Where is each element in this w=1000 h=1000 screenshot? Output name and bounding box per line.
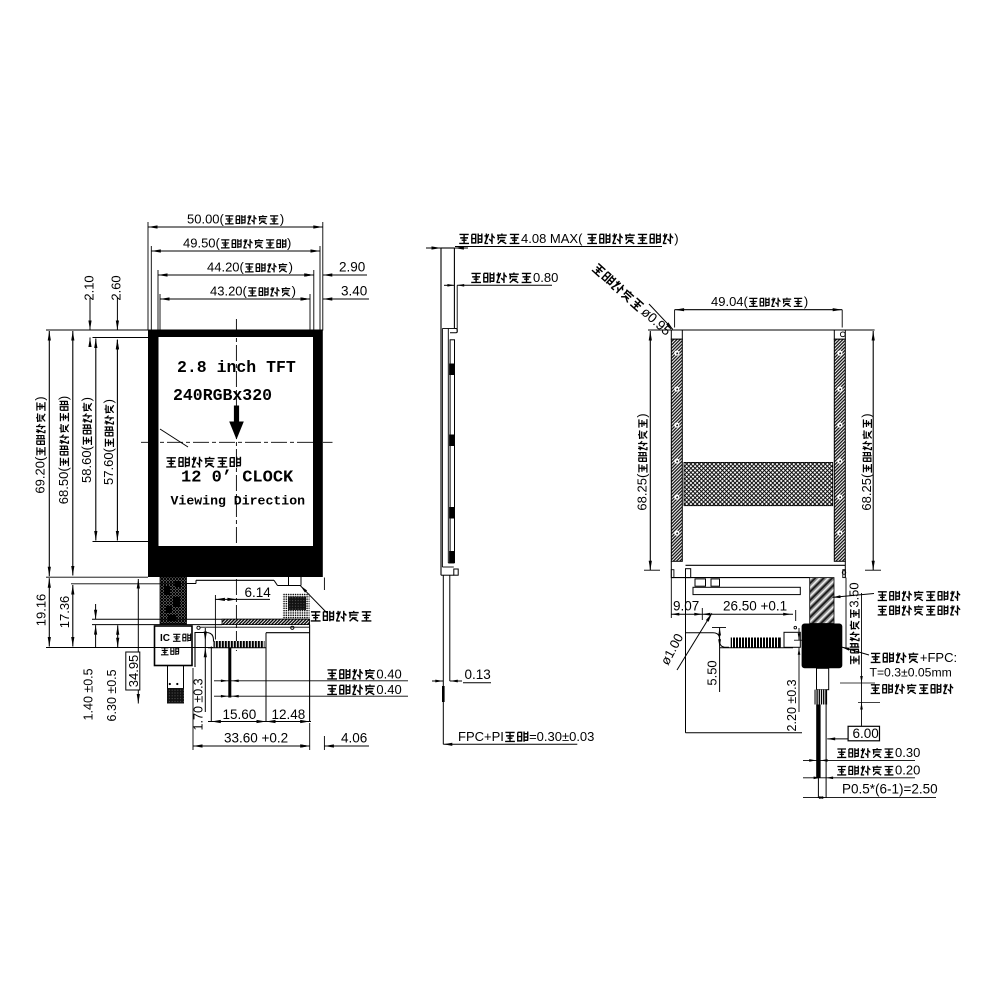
svg-text:50.00(: 50.00( <box>187 212 225 227</box>
svg-text:=0.30: =0.30 <box>529 729 562 744</box>
svg-text:): ) <box>33 396 48 400</box>
svg-text:6.00: 6.00 <box>853 726 879 741</box>
svg-text:0.40: 0.40 <box>376 682 401 697</box>
svg-text:1.40: 1.40 <box>82 696 96 720</box>
svg-text:±0.03: ±0.03 <box>562 729 594 744</box>
svg-text:+FPC:: +FPC: <box>920 650 957 665</box>
svg-text:): ) <box>56 396 71 400</box>
svg-text:±0.5: ±0.5 <box>82 668 96 692</box>
svg-text:68.50(: 68.50( <box>56 467 71 505</box>
svg-text:57.60(: 57.60( <box>101 447 116 485</box>
svg-text:): ) <box>287 236 291 251</box>
svg-text:68.25(: 68.25( <box>859 473 874 511</box>
svg-text:±0.3: ±0.3 <box>785 679 799 703</box>
svg-text:68.25(: 68.25( <box>635 473 650 511</box>
svg-text:6.14: 6.14 <box>245 585 272 600</box>
svg-text:43.20(: 43.20( <box>210 284 248 299</box>
svg-text:58.60(: 58.60( <box>79 445 94 483</box>
svg-text:): ) <box>635 413 650 417</box>
svg-text:T=0.3: T=0.3 <box>870 666 902 680</box>
svg-text:33.60 +0.2: 33.60 +0.2 <box>224 731 288 746</box>
svg-text:19.16: 19.16 <box>34 594 49 627</box>
svg-text:34.95: 34.95 <box>126 655 141 688</box>
svg-text:15.60: 15.60 <box>223 707 257 722</box>
svg-text:IC: IC <box>160 633 170 644</box>
svg-text:2.60: 2.60 <box>109 275 124 300</box>
svg-text:P0.5*(6-1)=2.50: P0.5*(6-1)=2.50 <box>842 782 938 797</box>
svg-text:): ) <box>101 399 116 403</box>
svg-text:): ) <box>859 413 874 417</box>
svg-text:2.8 inch TFT: 2.8 inch TFT <box>177 358 296 377</box>
svg-text:9.07: 9.07 <box>673 599 699 614</box>
svg-text:0.20: 0.20 <box>895 763 920 778</box>
svg-text:12.48: 12.48 <box>272 707 306 722</box>
svg-text:6.30: 6.30 <box>105 697 119 721</box>
svg-text:49.50(: 49.50( <box>183 236 221 251</box>
svg-text:12 0’ CLOCK: 12 0’ CLOCK <box>181 469 294 488</box>
svg-text:69.20(: 69.20( <box>33 456 48 494</box>
svg-text:49.04(: 49.04( <box>711 294 749 309</box>
svg-text:): ) <box>292 284 296 299</box>
svg-text:): ) <box>804 294 808 309</box>
svg-text:2.90: 2.90 <box>339 260 365 275</box>
svg-text:Viewing Direction: Viewing Direction <box>171 494 306 509</box>
svg-text:0.40: 0.40 <box>376 667 401 682</box>
svg-text:FPC+PI: FPC+PI <box>458 729 504 744</box>
svg-text:): ) <box>79 397 94 401</box>
svg-text:±0.05mm: ±0.05mm <box>901 666 952 680</box>
svg-text:17.36: 17.36 <box>57 596 72 629</box>
svg-text:5.50: 5.50 <box>705 660 720 685</box>
svg-text:±0.3: ±0.3 <box>192 678 206 702</box>
svg-text:44.20(: 44.20( <box>207 260 245 275</box>
svg-text:0.80: 0.80 <box>533 270 558 285</box>
svg-text:): ) <box>289 260 293 275</box>
svg-text:): ) <box>674 231 678 246</box>
svg-text:2.20: 2.20 <box>785 707 799 731</box>
svg-text:4.08 MAX(: 4.08 MAX( <box>521 231 583 246</box>
svg-text:0.30: 0.30 <box>895 745 920 760</box>
svg-text:1.70: 1.70 <box>192 706 206 730</box>
svg-text:3.40: 3.40 <box>341 284 367 299</box>
svg-text:26.50 +0.1: 26.50 +0.1 <box>723 599 787 614</box>
svg-text:0.13: 0.13 <box>465 667 491 682</box>
svg-text:4.06: 4.06 <box>341 731 367 746</box>
svg-text:2.10: 2.10 <box>82 275 97 300</box>
svg-text:±0.5: ±0.5 <box>105 669 119 693</box>
svg-text:240RGBx320: 240RGBx320 <box>173 386 272 405</box>
svg-text:): ) <box>280 212 284 227</box>
